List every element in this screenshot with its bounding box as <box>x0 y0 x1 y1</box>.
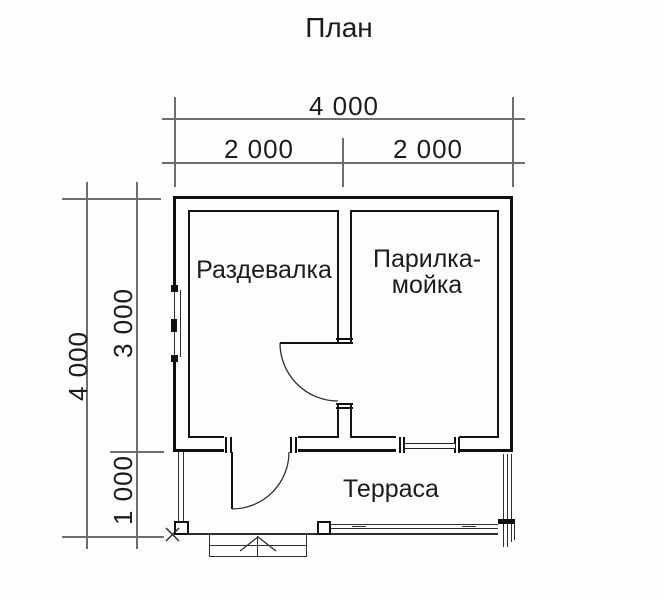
entrance-door-jamb <box>290 437 292 453</box>
dim-label-top-right: 2 000 <box>378 134 478 165</box>
plan-title: План <box>259 12 419 44</box>
terrace-right-edge <box>503 454 504 520</box>
entrance-door-jamb <box>230 437 232 453</box>
terrace-post-right-leg <box>514 524 515 540</box>
dim-label-left-lower: 1 000 <box>108 430 134 550</box>
dim-label-left-upper: 3 000 <box>108 263 134 383</box>
railing-line <box>331 528 498 529</box>
railing-dash <box>352 526 366 527</box>
room-label-steam-line1: Парилка- <box>352 246 502 272</box>
terrace-post-right-leg <box>503 524 504 547</box>
terrace-label: Терраса <box>316 475 466 504</box>
entrance-door-opening <box>224 435 298 454</box>
interior-door-leaf <box>280 342 338 344</box>
steps-center-line <box>257 536 258 557</box>
interior-door-opening <box>335 342 353 404</box>
interior-door-jamb <box>336 403 353 405</box>
room-label-steam-wash: Парилка- мойка <box>352 246 502 298</box>
railing-dash <box>462 526 476 527</box>
extension-line-top-middle <box>342 138 344 187</box>
terrace-right-edge <box>511 454 512 520</box>
floor-plan: План 4 000 2 000 2 000 4 000 3 000 1 000… <box>0 0 664 600</box>
entrance-door-swing-arc <box>232 452 289 509</box>
entrance-door-jamb <box>225 437 227 453</box>
terrace-right-edge <box>507 454 508 520</box>
room-changing <box>188 210 339 438</box>
room-label-steam-line2: мойка <box>352 272 502 298</box>
left-window-mullion <box>171 319 177 332</box>
bottom-window-jamb <box>458 437 460 453</box>
interior-door-jamb <box>336 407 353 409</box>
left-window-jamb-bottom <box>171 355 178 362</box>
steps-tread-line <box>209 545 307 546</box>
railing-line <box>331 524 498 525</box>
terrace-left-edge <box>178 452 179 522</box>
terrace-post-middle <box>317 521 331 535</box>
extension-line-top-left <box>174 97 176 187</box>
extension-line-top-right <box>512 97 514 187</box>
left-window-glazing-line <box>180 290 181 357</box>
dim-label-top-total: 4 000 <box>294 91 394 122</box>
entrance-door-leaf <box>231 452 233 509</box>
terrace-left-edge <box>183 452 184 522</box>
left-window-jamb-top <box>171 285 178 292</box>
dim-tick-left-top <box>62 198 161 200</box>
terrace-post-right-leg <box>507 524 508 547</box>
bottom-window-sill <box>404 443 456 449</box>
room-label-changing: Раздевалка <box>189 256 339 285</box>
interior-door-jamb <box>336 342 353 344</box>
dim-label-left-total: 4 000 <box>63 306 89 426</box>
bottom-window-jamb <box>399 437 401 453</box>
entrance-door-jamb <box>295 437 297 453</box>
terrace-post-left <box>174 521 189 535</box>
dim-label-top-left: 2 000 <box>209 134 309 165</box>
interior-door-jamb <box>336 338 353 340</box>
terrace-post-right-leg <box>511 524 512 542</box>
